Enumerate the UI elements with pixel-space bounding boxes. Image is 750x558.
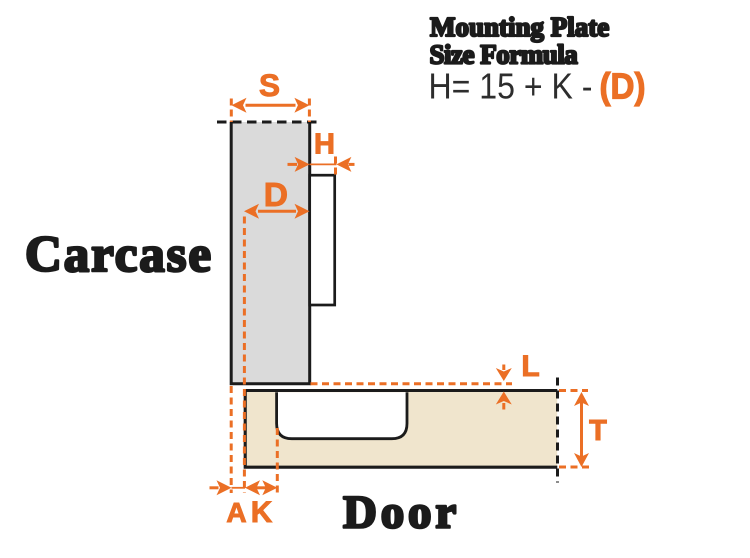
svg-text:D: D [264,177,288,214]
svg-text:K: K [251,496,273,529]
svg-text:H= 15 + K -: H= 15 + K - [429,66,593,107]
svg-text:(D): (D) [600,66,646,107]
svg-text:Door: Door [343,487,460,539]
svg-text:T: T [589,415,607,447]
svg-text:Mounting Plate: Mounting Plate [430,12,609,42]
svg-text:H: H [314,129,335,161]
svg-text:S: S [259,67,280,103]
svg-text:A: A [226,497,246,528]
svg-text:L: L [521,350,539,383]
svg-text:Carcase: Carcase [25,227,213,283]
